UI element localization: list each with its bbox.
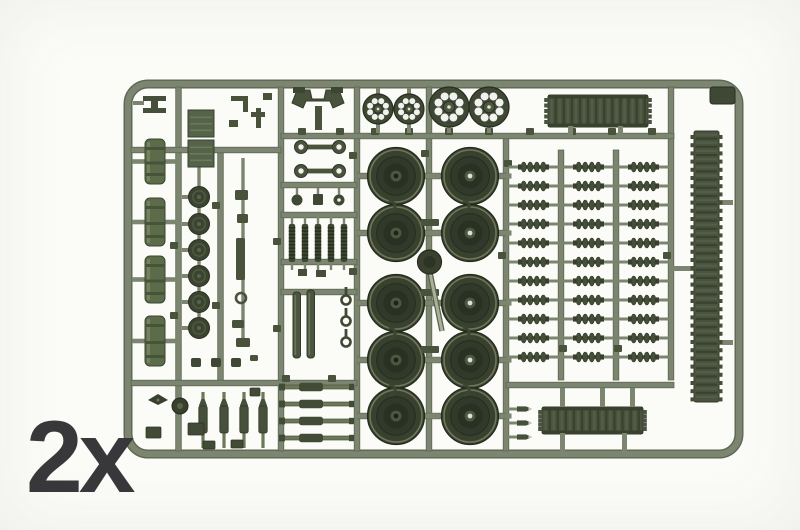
tow-eyelets <box>295 141 346 178</box>
drive-sprocket <box>429 87 469 133</box>
tow-eyelet <box>320 141 346 154</box>
track-link-cluster <box>564 162 614 172</box>
tow-eyelet <box>295 165 321 178</box>
track-link-cluster <box>509 219 559 229</box>
track-link-cluster <box>619 352 669 362</box>
track-link-cluster <box>564 314 614 324</box>
torsion-bar <box>279 400 354 408</box>
track-link-cluster <box>564 352 614 362</box>
track-link-cluster <box>619 181 669 191</box>
sprue-photo: 2x <box>0 0 800 530</box>
hub-discs <box>182 187 210 339</box>
hub-disc <box>182 292 210 313</box>
drive-sprockets <box>363 87 509 133</box>
track-link-cluster <box>509 295 559 305</box>
track-link-cluster <box>619 162 669 172</box>
track-link-cluster <box>619 276 669 286</box>
fuel-tank <box>132 139 179 184</box>
torsion-bars <box>279 383 354 442</box>
drive-sprocket <box>363 88 393 133</box>
tow-eyelet <box>295 141 321 154</box>
drive-sprocket <box>469 87 509 133</box>
track-link-cluster <box>619 200 669 210</box>
bullet-peg <box>508 420 532 425</box>
shock-absorber <box>259 392 267 448</box>
hub-disc <box>182 240 210 261</box>
road-wheel <box>429 148 512 205</box>
shock-absorber <box>220 392 228 448</box>
track-link-cluster <box>564 333 614 343</box>
mold-corner-tab <box>710 87 735 104</box>
track-run-vertical <box>673 131 733 402</box>
road-wheel <box>429 388 512 445</box>
track-link-cluster <box>619 333 669 343</box>
road-wheel <box>355 332 438 389</box>
track-section-bottom <box>538 388 647 451</box>
track-section-top <box>544 95 652 135</box>
track-link-cluster <box>619 295 669 305</box>
road-wheel <box>355 275 438 332</box>
fuel-tank <box>132 256 179 303</box>
shock-absorber <box>240 392 248 448</box>
bullet-peg <box>508 406 532 411</box>
bottom-left-parts <box>146 358 267 449</box>
track-link-clusters <box>509 162 669 362</box>
coil-springs <box>289 217 347 277</box>
bullet-pegs <box>508 406 532 439</box>
hub-disc <box>182 266 210 287</box>
track-link-cluster <box>619 238 669 248</box>
fuel-tank <box>132 198 179 246</box>
track-link-cluster <box>564 295 614 305</box>
quantity-label: 2x <box>26 406 131 508</box>
track-link-cluster <box>509 333 559 343</box>
shock-absorber <box>199 392 207 448</box>
hub-disc <box>182 187 210 208</box>
hook-parts <box>342 287 351 347</box>
torsion-bar <box>279 417 354 425</box>
top-bracket <box>292 87 344 130</box>
torsion-bar <box>279 434 354 442</box>
track-link-cluster <box>509 162 559 172</box>
road-wheel <box>429 332 512 389</box>
track-link-cluster <box>509 314 559 324</box>
track-link-cluster <box>509 200 559 210</box>
track-link-cluster <box>619 257 669 267</box>
track-link-cluster <box>509 238 559 248</box>
track-link-cluster <box>564 219 614 229</box>
track-link-cluster <box>564 257 614 267</box>
fuel-tank <box>132 316 179 366</box>
ball-pins <box>292 188 345 206</box>
track-link-cluster <box>564 181 614 191</box>
track-link-cluster <box>619 314 669 324</box>
track-link-cluster <box>619 219 669 229</box>
hub-disc <box>182 214 210 235</box>
track-link-cluster <box>509 276 559 286</box>
track-link-cluster <box>564 276 614 286</box>
track-link-cluster <box>564 238 614 248</box>
track-link-cluster <box>509 181 559 191</box>
road-wheel <box>355 388 438 445</box>
track-link-cluster <box>509 352 559 362</box>
fuel-tanks <box>132 139 179 366</box>
track-link-cluster <box>564 200 614 210</box>
barrel-halves <box>293 290 315 358</box>
bullet-peg <box>508 434 532 439</box>
hub-disc <box>182 318 210 339</box>
track-link-cluster <box>509 257 559 267</box>
drive-sprocket <box>394 88 424 133</box>
tow-eyelet <box>320 165 346 178</box>
